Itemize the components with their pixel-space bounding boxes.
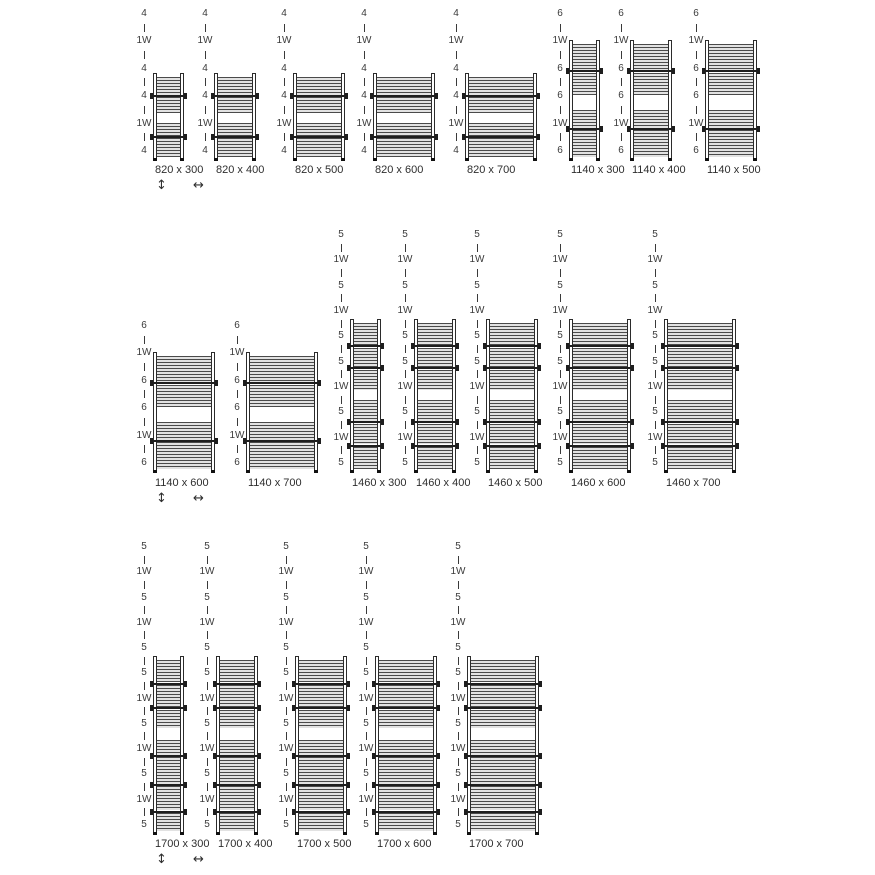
tube-group [298, 660, 344, 682]
wall-bracket [156, 382, 212, 385]
right-rail [596, 40, 600, 159]
pattern-label: 5 [338, 357, 344, 367]
pattern-dash [696, 51, 697, 59]
pattern-label: 5 [474, 281, 480, 291]
tube-group [417, 323, 453, 345]
wall-bracket [156, 440, 212, 443]
wall-bracket [353, 444, 378, 447]
radiator-drawing [569, 319, 631, 471]
pattern-dash [456, 106, 457, 114]
bracket-line [462, 95, 540, 97]
pattern-label: 1W [398, 306, 413, 316]
pattern-label: 5 [141, 643, 147, 653]
bracket-line [566, 345, 634, 347]
pattern-label: 1W [200, 618, 215, 628]
tube-group [217, 97, 253, 113]
tube-group [489, 323, 535, 345]
pattern-dash [405, 345, 406, 353]
tube-group [378, 813, 434, 831]
pattern-dash [456, 51, 457, 59]
pattern-dash [364, 78, 365, 86]
pattern-label: 1W [398, 433, 413, 443]
pattern-label: 6 [557, 64, 563, 74]
pattern-dash [366, 606, 367, 614]
towel-gap [298, 728, 344, 740]
bracket-line [347, 367, 384, 369]
pattern-dash [696, 133, 697, 141]
pattern-label: 5 [204, 820, 210, 830]
pattern-dash [560, 446, 561, 454]
pattern-label: 5 [338, 458, 344, 468]
towel-gap [417, 390, 453, 400]
tube-group [156, 97, 181, 113]
tube-group [219, 710, 255, 729]
bracket-line [292, 811, 350, 813]
wall-bracket [633, 128, 669, 131]
wall-bracket [353, 345, 378, 348]
radiator-drawing [153, 352, 215, 471]
pattern-dash [341, 269, 342, 277]
radiator-drawing [705, 40, 757, 159]
tube-group [572, 73, 597, 95]
radiator-drawing [375, 656, 437, 833]
pattern-dash [284, 78, 285, 86]
pattern-label: 4 [141, 64, 147, 74]
pattern-label: 5 [141, 542, 147, 552]
left-rail [153, 352, 157, 471]
pattern-label: 5 [455, 542, 461, 552]
wall-bracket [219, 810, 255, 813]
pattern-label: 5 [283, 820, 289, 830]
bracket-line [566, 421, 634, 423]
pattern-label: 1W [279, 795, 294, 805]
pattern-label: 5 [204, 769, 210, 779]
size-label: 1460 x 500 [488, 477, 542, 490]
bracket-line [347, 445, 384, 447]
wall-bracket [489, 345, 535, 348]
height-arrow-icon: ↕ [156, 492, 167, 506]
pattern-label: 6 [234, 376, 240, 386]
bracket-line [464, 755, 542, 757]
wall-bracket [298, 755, 344, 758]
pattern-dash [144, 758, 145, 766]
tube-group [470, 786, 536, 810]
pattern-label: 5 [283, 719, 289, 729]
wall-bracket [572, 70, 597, 73]
tube-group [468, 138, 534, 157]
bracket-line [411, 345, 459, 347]
right-rail [314, 352, 318, 471]
pattern-dash [144, 783, 145, 791]
pattern-dash [341, 244, 342, 252]
bracket-line [483, 445, 541, 447]
tube-body [376, 77, 432, 157]
size-label: 1460 x 700 [666, 477, 720, 490]
pattern-dash [341, 345, 342, 353]
pattern-dash [286, 732, 287, 740]
pattern-dash [205, 51, 206, 59]
pattern-label: 5 [204, 668, 210, 678]
tube-group [489, 424, 535, 444]
size-label: 820 x 300 [155, 164, 203, 177]
tube-group [378, 786, 434, 810]
pattern-dash [477, 421, 478, 429]
bracket-line [150, 683, 187, 685]
size-label: 1140 x 500 [707, 164, 761, 177]
pattern-label: 5 [557, 357, 563, 367]
wall-bracket [298, 707, 344, 710]
tube-group [378, 740, 434, 755]
left-rail [630, 40, 634, 159]
bracket-line [627, 70, 675, 72]
pattern-dash [144, 682, 145, 690]
left-rail [705, 40, 709, 159]
pattern-label: 5 [455, 593, 461, 603]
wall-bracket [249, 440, 315, 443]
tube-group [156, 77, 181, 95]
tube-group [470, 740, 536, 755]
wall-bracket [217, 95, 253, 97]
size-label: 1700 x 300 [155, 838, 209, 851]
tube-group [489, 348, 535, 367]
bracket-line [213, 755, 261, 757]
pattern-dash [405, 446, 406, 454]
pattern-label: 5 [455, 820, 461, 830]
tube-group [353, 370, 378, 390]
left-rail [246, 352, 250, 471]
towel-gap [572, 390, 628, 400]
wall-bracket [378, 707, 434, 710]
pattern-label: 1W [359, 795, 374, 805]
pattern-dash [144, 606, 145, 614]
tube-group [572, 370, 628, 390]
pattern-label: 1W [449, 36, 464, 46]
pattern-label: 5 [204, 593, 210, 603]
pattern-label: 5 [402, 331, 408, 341]
pattern-label: 1W [451, 618, 466, 628]
tube-group [633, 110, 669, 128]
pattern-label: 5 [338, 407, 344, 417]
towel-gap [156, 113, 181, 123]
pattern-dash [144, 78, 145, 86]
bracket-line [661, 445, 739, 447]
tube-group [156, 660, 181, 682]
pattern-label: 4 [453, 146, 459, 156]
radiator-drawing [293, 73, 345, 159]
pattern-label: 1W [137, 618, 152, 628]
pattern-label: 4 [281, 146, 287, 156]
tube-group [708, 130, 754, 157]
wall-bracket [489, 367, 535, 370]
pattern-label: 6 [141, 321, 147, 331]
pattern-label: 6 [618, 146, 624, 156]
pattern-dash [207, 606, 208, 614]
pattern-dash [341, 396, 342, 404]
pattern-label: 6 [557, 146, 563, 156]
pattern-dash [560, 396, 561, 404]
pattern-dash [207, 657, 208, 665]
towel-gap [470, 728, 536, 740]
tube-group [296, 97, 342, 113]
pattern-label: 5 [338, 331, 344, 341]
pattern-dash [560, 269, 561, 277]
tube-group [156, 757, 181, 784]
pattern-label: 1W [334, 382, 349, 392]
tube-group [417, 447, 453, 469]
pattern-label: 5 [402, 357, 408, 367]
wall-bracket [219, 755, 255, 758]
wall-bracket [298, 682, 344, 685]
tube-group [378, 757, 434, 784]
radiator-drawing [664, 319, 736, 471]
pattern-label: 4 [361, 146, 367, 156]
pattern-dash [144, 390, 145, 398]
pattern-dash [205, 133, 206, 141]
wall-bracket [156, 784, 181, 787]
right-rail [431, 73, 435, 159]
wall-bracket [417, 367, 453, 370]
pattern-dash [207, 581, 208, 589]
tube-body [470, 660, 536, 831]
pattern-dash [364, 51, 365, 59]
pattern-dash [458, 682, 459, 690]
tube-group [353, 424, 378, 444]
radiator-drawing [153, 73, 184, 159]
wall-bracket [470, 784, 536, 787]
wall-bracket [633, 70, 669, 73]
bracket-line [290, 136, 348, 138]
bracket-line [483, 421, 541, 423]
pattern-label: 4 [141, 91, 147, 101]
wall-bracket [378, 682, 434, 685]
width-arrow-icon: ↔ [193, 179, 204, 193]
pattern-dash [207, 707, 208, 715]
tube-group [353, 400, 378, 420]
tube-group [667, 400, 733, 420]
wall-bracket [219, 682, 255, 685]
size-label: 1460 x 400 [416, 477, 470, 490]
tube-group [353, 348, 378, 367]
pattern-dash [237, 418, 238, 426]
pattern-label: 5 [363, 593, 369, 603]
pattern-dash [144, 445, 145, 453]
pattern-dash [205, 106, 206, 114]
pattern-dash [655, 294, 656, 302]
pattern-dash [621, 106, 622, 114]
size-label: 1700 x 500 [297, 838, 351, 851]
tube-group [572, 447, 628, 469]
pattern-dash [366, 631, 367, 639]
pattern-label: 4 [141, 146, 147, 156]
size-label: 1140 x 300 [571, 164, 625, 177]
pattern-dash [560, 320, 561, 328]
pattern-dash [364, 133, 365, 141]
pattern-label: 5 [204, 643, 210, 653]
pattern-dash [560, 133, 561, 141]
pattern-label: 5 [652, 230, 658, 240]
wall-bracket [417, 444, 453, 447]
bracket-line [627, 128, 675, 130]
tube-body [417, 323, 453, 469]
radiator-drawing [350, 319, 381, 471]
left-rail [465, 73, 469, 159]
wall-bracket [156, 682, 181, 685]
pattern-label: 6 [693, 64, 699, 74]
tube-group [470, 660, 536, 682]
pattern-label: 5 [652, 281, 658, 291]
tube-group [219, 757, 255, 784]
tube-body [489, 323, 535, 469]
bracket-line [150, 811, 187, 813]
tube-group [376, 123, 432, 136]
left-rail [569, 319, 573, 471]
pattern-dash [284, 133, 285, 141]
towel-gap [249, 407, 315, 422]
pattern-dash [560, 106, 561, 114]
pattern-label: 5 [283, 542, 289, 552]
tube-group [572, 130, 597, 157]
size-label: 1700 x 400 [218, 838, 272, 851]
tube-group [470, 710, 536, 729]
tube-group [633, 73, 669, 95]
tube-group [468, 77, 534, 95]
pattern-label: 1W [470, 382, 485, 392]
wall-bracket [417, 345, 453, 348]
pattern-dash [696, 78, 697, 86]
radiator-drawing [246, 352, 318, 471]
left-rail [293, 73, 297, 159]
bracket-line [464, 811, 542, 813]
pattern-label: 6 [693, 91, 699, 101]
bracket-line [150, 440, 218, 442]
wall-bracket [572, 345, 628, 348]
width-arrow-icon: ↔ [193, 853, 204, 867]
bracket-line [213, 707, 261, 709]
right-rail [668, 40, 672, 159]
tube-group [633, 130, 669, 157]
pattern-dash [458, 556, 459, 564]
width-arrow-icon: ↔ [193, 492, 204, 506]
bracket-line [150, 755, 187, 757]
radiator-drawing [465, 73, 537, 159]
pattern-label: 5 [474, 458, 480, 468]
tube-group [417, 400, 453, 420]
pattern-dash [655, 244, 656, 252]
pattern-label: 4 [453, 64, 459, 74]
pattern-dash [144, 631, 145, 639]
pattern-label: 6 [141, 458, 147, 468]
wall-bracket [298, 784, 344, 787]
pattern-dash [144, 657, 145, 665]
tube-group [572, 348, 628, 367]
pattern-dash [477, 294, 478, 302]
bracket-line [213, 683, 261, 685]
wall-bracket [489, 421, 535, 424]
wall-bracket [468, 136, 534, 138]
pattern-label: 4 [281, 91, 287, 101]
pattern-dash [477, 269, 478, 277]
towel-gap [667, 390, 733, 400]
bracket-line [213, 784, 261, 786]
pattern-dash [144, 556, 145, 564]
pattern-dash [621, 78, 622, 86]
pattern-label: 5 [557, 331, 563, 341]
pattern-label: 1W [334, 306, 349, 316]
pattern-label: 6 [234, 321, 240, 331]
bracket-line [370, 136, 438, 138]
pattern-label: 4 [281, 64, 287, 74]
wall-bracket [249, 382, 315, 385]
tube-group [298, 757, 344, 784]
radiator-drawing [467, 656, 539, 833]
pattern-label: 4 [281, 9, 287, 19]
pattern-label: 5 [283, 769, 289, 779]
tube-group [156, 422, 212, 440]
bracket-line [661, 367, 739, 369]
pattern-label: 1W [648, 255, 663, 265]
wall-bracket [489, 444, 535, 447]
pattern-dash [366, 657, 367, 665]
pattern-dash [458, 581, 459, 589]
pattern-dash [621, 51, 622, 59]
tube-group [417, 348, 453, 367]
pattern-dash [405, 294, 406, 302]
tube-group [572, 44, 597, 70]
pattern-dash [405, 421, 406, 429]
pattern-label: 5 [474, 230, 480, 240]
pattern-dash [458, 808, 459, 816]
tube-group [667, 348, 733, 367]
pattern-label: 5 [402, 281, 408, 291]
tube-group [489, 400, 535, 420]
pattern-dash [560, 294, 561, 302]
radiator-drawing [373, 73, 435, 159]
pattern-label: 5 [283, 643, 289, 653]
size-label: 820 x 500 [295, 164, 343, 177]
tube-group [217, 77, 253, 95]
pattern-label: 5 [363, 719, 369, 729]
pattern-label: 1W [398, 382, 413, 392]
wall-bracket [156, 95, 181, 97]
tube-group [156, 356, 212, 382]
wall-bracket [572, 128, 597, 131]
pattern-dash [366, 808, 367, 816]
tube-group [156, 685, 181, 707]
pattern-label: 5 [141, 668, 147, 678]
tube-group [468, 97, 534, 113]
pattern-label: 1W [279, 694, 294, 704]
radiator-drawing [630, 40, 672, 159]
pattern-dash [144, 106, 145, 114]
tube-body [296, 77, 342, 157]
tube-group [378, 685, 434, 707]
tube-body [667, 323, 733, 469]
tube-group [708, 110, 754, 128]
pattern-dash [560, 370, 561, 378]
pattern-dash [405, 244, 406, 252]
bracket-line [211, 95, 259, 97]
pattern-dash [286, 758, 287, 766]
tube-group [376, 138, 432, 157]
wall-bracket [156, 755, 181, 758]
radiator-drawing [414, 319, 456, 471]
tube-group [468, 123, 534, 136]
pattern-dash [458, 758, 459, 766]
tube-body [468, 77, 534, 157]
tube-group [296, 123, 342, 136]
towel-gap [708, 95, 754, 110]
wall-bracket [156, 136, 181, 138]
